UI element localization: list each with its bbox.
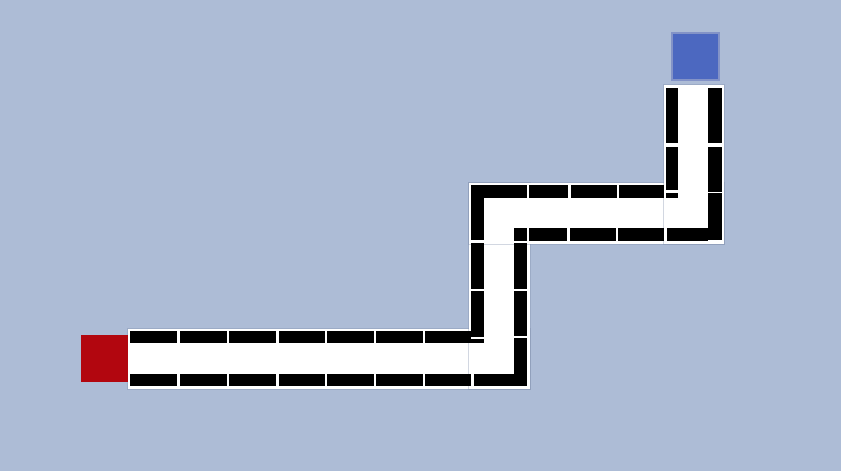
wall-segment-16: [471, 198, 484, 241]
wall-segment-6: [425, 331, 471, 343]
wall-segment-22: [514, 291, 527, 336]
start-square[interactable]: [81, 335, 128, 382]
wall-segment-32: [666, 147, 678, 190]
wall-segment-30: [667, 228, 709, 241]
wall-segment-25: [571, 185, 617, 198]
wall-segment-10: [279, 374, 325, 387]
wall-segment-35: [708, 147, 721, 192]
wall-segment-0: [130, 331, 177, 343]
wall-segment-13: [425, 374, 471, 387]
wall-segment-21: [514, 243, 527, 289]
wall-segment-11: [327, 374, 374, 387]
wall-segment-3: [279, 331, 325, 343]
wall-segment-31: [666, 88, 678, 143]
wall-segment-4: [327, 331, 374, 343]
wall-segment-23: [514, 338, 527, 386]
wall-segment-19: [471, 339, 484, 343]
wall-segment-18: [471, 291, 484, 337]
wall-segment-36: [708, 193, 721, 240]
wall-segment-28: [570, 228, 616, 241]
maze-board[interactable]: [0, 0, 841, 471]
wall-segment-33: [666, 193, 678, 197]
wall-segment-12: [376, 374, 423, 387]
wall-segment-24: [529, 185, 568, 198]
goal-square: [671, 32, 720, 81]
wall-segment-26: [619, 185, 664, 198]
wall-segment-34: [708, 88, 721, 143]
wall-segment-2: [229, 331, 276, 343]
wall-segment-1: [180, 331, 228, 343]
wall-segment-5: [376, 331, 423, 343]
wall-segment-17: [471, 243, 484, 289]
wall-segment-8: [180, 374, 228, 387]
wall-segment-15: [471, 185, 527, 198]
wall-segment-7: [130, 374, 177, 387]
wall-segment-20: [514, 228, 527, 241]
wall-segment-27: [529, 228, 567, 241]
wall-segment-29: [618, 228, 664, 241]
wall-segment-9: [229, 374, 276, 387]
